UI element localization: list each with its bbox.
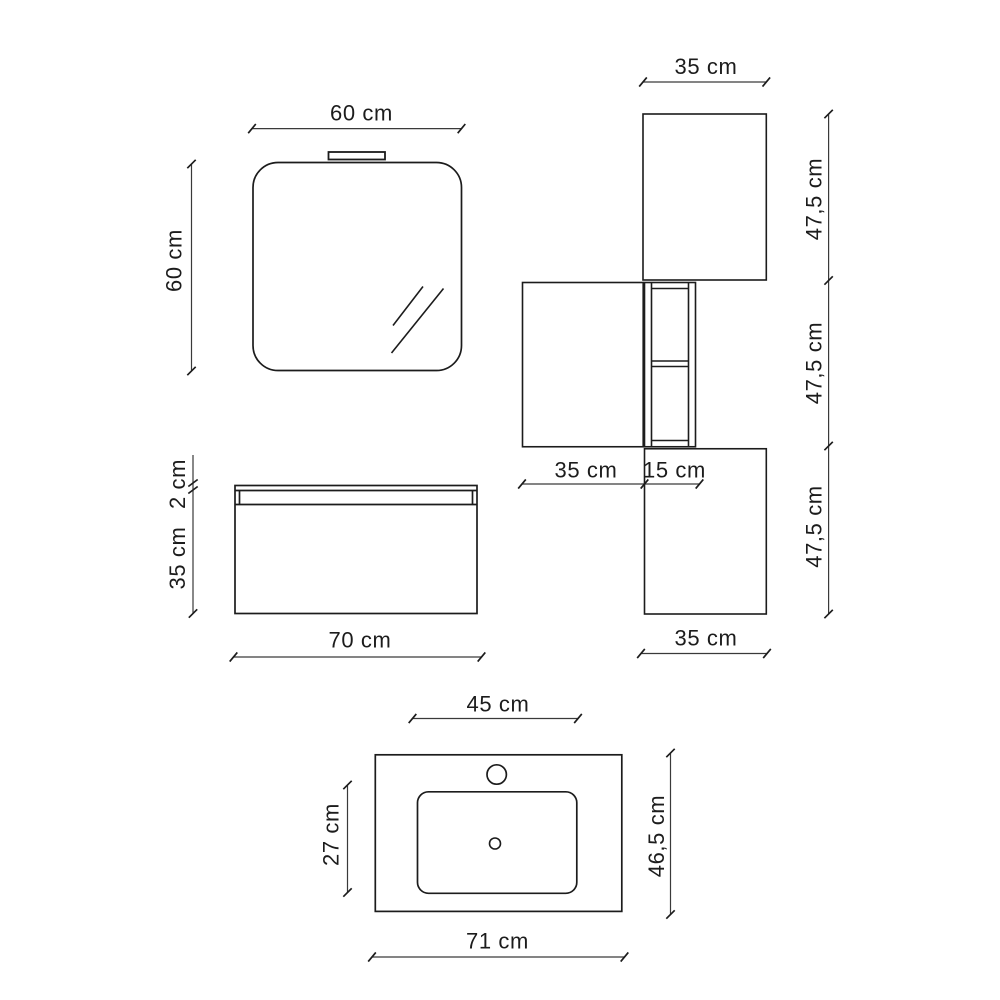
- svg-text:35 cm: 35 cm: [165, 527, 190, 590]
- svg-text:46,5 cm: 46,5 cm: [644, 795, 669, 877]
- svg-text:35 cm: 35 cm: [555, 458, 618, 483]
- svg-text:47,5 cm: 47,5 cm: [802, 322, 827, 404]
- svg-text:45 cm: 45 cm: [467, 692, 530, 717]
- svg-text:35 cm: 35 cm: [675, 54, 738, 79]
- svg-text:60 cm: 60 cm: [162, 229, 187, 292]
- svg-text:47,5 cm: 47,5 cm: [802, 485, 827, 567]
- svg-text:71 cm: 71 cm: [466, 929, 529, 954]
- svg-text:2 cm: 2 cm: [165, 459, 190, 509]
- svg-text:70 cm: 70 cm: [329, 628, 392, 653]
- svg-text:27 cm: 27 cm: [319, 803, 344, 866]
- svg-text:35 cm: 35 cm: [675, 626, 738, 651]
- svg-text:47,5 cm: 47,5 cm: [802, 158, 827, 240]
- svg-text:15 cm: 15 cm: [643, 458, 706, 483]
- svg-text:60 cm: 60 cm: [330, 101, 393, 126]
